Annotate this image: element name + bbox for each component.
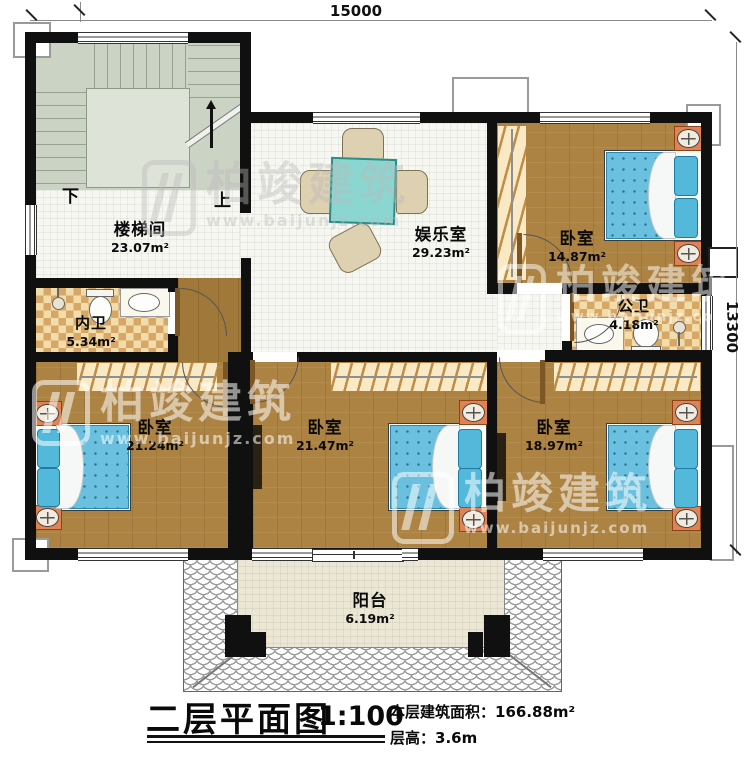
stair-down-label: 下 [62,182,79,207]
wardrobe-rod [511,129,513,277]
window [402,548,418,561]
title-underline [147,735,385,738]
window [543,548,643,561]
stair-steps-top [94,43,190,89]
chair [300,170,332,214]
pillow [674,198,698,238]
drain-stem [678,332,680,346]
nightstand [33,401,62,426]
door-leaf [175,288,180,336]
wall-segment [25,352,178,362]
wardrobe-rod [557,376,697,378]
room-area: 18.97m² [525,438,583,454]
bed-sheet [648,425,676,509]
dimension-line-top [30,20,712,21]
room-area: 21.47m² [296,438,354,454]
room-area: 29.23m² [412,245,470,261]
door-leaf [570,293,574,341]
nightstand [674,126,703,151]
stair-direction-arrow [210,108,213,148]
window [78,32,188,44]
window [540,112,650,124]
stair-up-label: 上 [214,186,231,211]
balcony-pillar [468,632,483,657]
hallway-floor [497,294,562,350]
room-name: 阳台 [345,590,394,611]
door-leaf [517,233,522,283]
nightstand [674,241,703,266]
wall-segment [562,283,712,294]
floor-area-label: 本层建筑面积： [390,703,495,721]
door-leaf [540,360,545,404]
game-table [329,157,397,225]
wall-segment [562,341,572,352]
room-area: 14.87m² [548,249,606,265]
room-label-bedroom-sw: 卧室 21.24m² [126,417,184,455]
pillow [458,468,482,508]
room-name: 内卫 [66,314,115,334]
wall-segment [168,334,178,354]
nightstand [672,506,701,531]
wall-segment [241,258,251,362]
room-name: 公卫 [609,297,658,317]
floor-height-info: 层高：3.6m [390,727,477,748]
window [78,548,188,561]
pillow [674,156,698,196]
room-label-bath-inner: 内卫 5.34m² [66,314,115,350]
wardrobe-rod [334,376,484,378]
floor-plan-drawing: 下 上 [0,0,750,757]
balcony-pillar [251,632,266,657]
stair-steps-left [36,92,88,190]
balcony-pillar [225,615,251,657]
floor-height-value: 3.6m [435,729,477,747]
room-name: 卧室 [126,417,184,438]
nightstand [459,507,488,532]
title-underline [147,741,385,743]
sliding-door-track [313,554,403,555]
room-area: 23.07m² [111,240,169,256]
room-label-entertainment: 娱乐室 29.23m² [412,224,470,262]
room-label-bedroom-s: 卧室 21.47m² [296,417,354,455]
nightstand [672,400,701,425]
room-label-bath-public: 公卫 4.18m² [609,297,658,333]
window [25,205,37,255]
room-name: 卧室 [525,417,583,438]
bed-sheet [432,425,460,509]
room-name: 楼梯间 [111,219,169,240]
room-label-balcony: 阳台 6.19m² [345,590,394,628]
sliding-door [312,549,404,562]
room-name: 娱乐室 [412,224,470,245]
pillow [37,468,60,507]
pillow [674,429,698,469]
window [313,112,420,124]
pillow [674,468,698,508]
floor-drain-icon [52,297,65,310]
balcony-pillar [484,615,510,657]
tv-icon [497,433,506,501]
room-label-stairwell: 楼梯间 23.07m² [111,219,169,257]
dimension-right-value: 13300 [723,298,741,356]
chair [342,128,384,160]
flue-box [708,247,738,278]
pillow [458,429,482,469]
sliding-door-panel [353,551,355,559]
floor-area-value: 166.88m² [495,703,575,721]
dimension-top-value: 15000 [306,2,406,20]
floor-area-info: 本层建筑面积：166.88m² [390,701,575,722]
wall-segment [25,278,178,288]
wall-segment [487,123,497,283]
pillow [37,429,60,468]
window [252,548,312,561]
room-area: 4.18m² [609,317,658,333]
window [701,296,713,350]
room-area: 21.24m² [126,438,184,454]
sink-icon [128,293,160,312]
wardrobe [553,362,701,392]
room-name: 卧室 [296,417,354,438]
nightstand [459,400,488,425]
room-area: 6.19m² [345,611,394,627]
room-label-bedroom-ne: 卧室 14.87m² [548,228,606,266]
wardrobe [330,362,488,392]
wall-segment [297,352,487,362]
bed-sheet [648,152,676,239]
room-area: 5.34m² [66,334,115,350]
stair-arrow-head [206,100,216,109]
floor-height-label: 层高： [390,729,435,747]
door-leaf [250,360,255,404]
plan-title: 二层平面图 [146,692,331,741]
room-label-bedroom-se: 卧室 18.97m² [525,417,583,455]
door-leaf [223,362,228,408]
stair-landing [86,88,190,188]
tv-icon [253,425,262,489]
wall-segment [487,283,517,294]
wall-segment [562,283,572,293]
wall-segment [487,352,497,560]
wall-segment [25,32,36,560]
chair [396,170,428,214]
room-name: 卧室 [548,228,606,249]
